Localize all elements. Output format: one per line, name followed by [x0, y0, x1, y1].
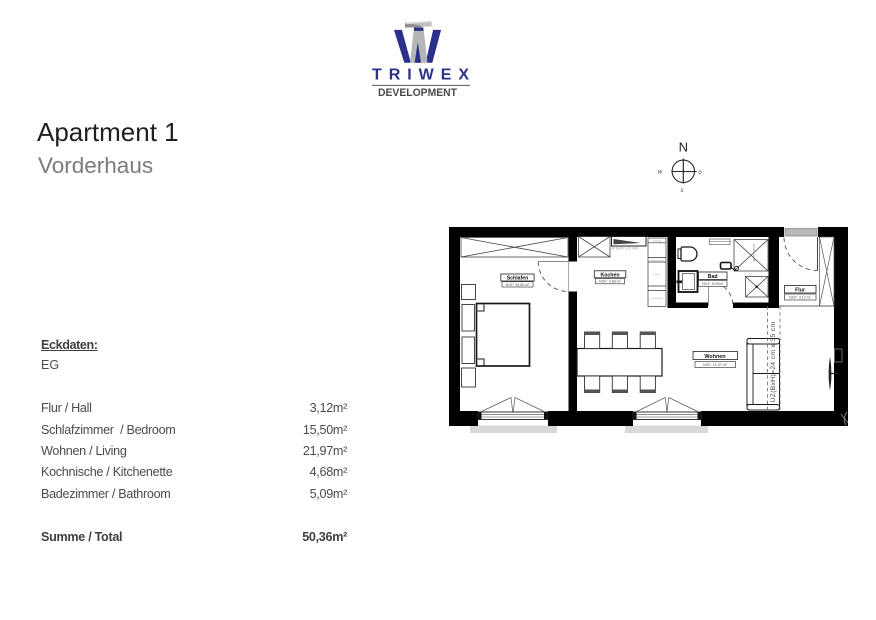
svg-text:Schlafen: Schlafen — [507, 276, 529, 282]
svg-text:Dusche 90x90: Dusche 90x90 — [752, 244, 756, 262]
svg-text:NGF: 3,12 m²: NGF: 3,12 m² — [789, 296, 812, 300]
svg-text:Flur: Flur — [795, 287, 805, 293]
svg-text:Kochen: Kochen — [600, 272, 619, 278]
svg-text:w: w — [658, 170, 663, 176]
svg-text:Herd: Herd — [655, 273, 661, 276]
svg-text:N: N — [679, 140, 688, 155]
svg-text:o: o — [698, 170, 702, 176]
svg-text:NGF: 5,09m²: NGF: 5,09m² — [702, 282, 724, 286]
svg-text:Waschbecken: Waschbecken — [650, 260, 664, 262]
svg-text:Bad: Bad — [708, 274, 718, 280]
svg-text:STGL60: STGL60 — [653, 240, 662, 242]
svg-text:Geschirrsp.: Geschirrsp. — [651, 297, 663, 300]
svg-text:UZ(BxH)=24 cm x 35 cm: UZ(BxH)=24 cm x 35 cm — [770, 322, 777, 403]
svg-text:s: s — [681, 188, 684, 194]
svg-text:NGF: 4,68 m²: NGF: 4,68 m² — [599, 280, 622, 284]
svg-text:NGF: 15,50 m²: NGF: 15,50 m² — [506, 283, 531, 287]
svg-text:NGF: 21,97 m²: NGF: 21,97 m² — [703, 363, 728, 367]
svg-text:Wohnen: Wohnen — [704, 354, 725, 360]
svg-text:B/ 60/60 1,20 0,90: B/ 60/60 1,20 0,90 — [612, 247, 638, 251]
